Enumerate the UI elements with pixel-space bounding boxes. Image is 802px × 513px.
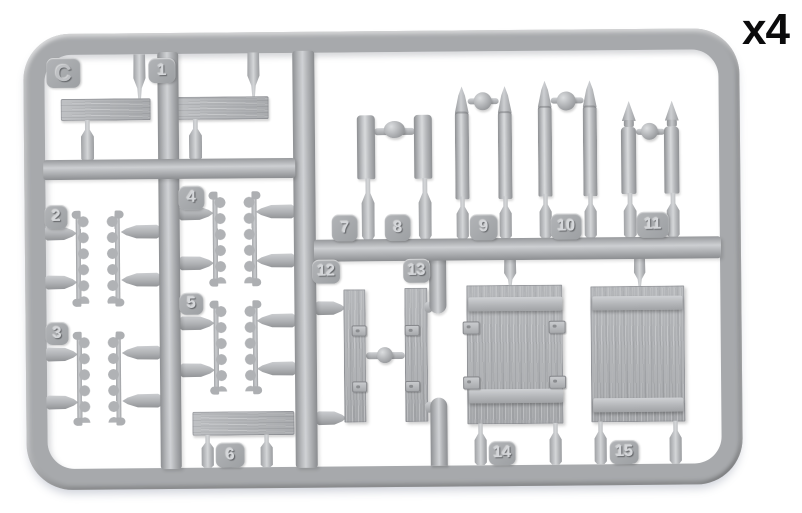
part-11-shell	[664, 127, 680, 194]
part-tab-5: 5	[179, 293, 203, 315]
part-10-shell	[583, 105, 598, 196]
part-tab-1: 1	[148, 58, 175, 83]
part-tab-6: 6	[216, 442, 245, 467]
hinge	[463, 321, 480, 334]
crate-batten	[468, 297, 562, 312]
part-10-shell	[538, 106, 553, 197]
sprue-rail-horizontal	[314, 236, 721, 262]
part-tab-11: 11	[637, 212, 669, 238]
part-6-plank	[192, 411, 294, 436]
part-2-serrated-strip	[106, 213, 121, 303]
part-tab-4: 4	[178, 186, 204, 210]
hinge	[463, 376, 480, 389]
latch	[405, 325, 420, 336]
sprue-rail-horizontal	[43, 158, 295, 180]
part-tab-15: 15	[610, 440, 639, 464]
part-2-serrated-strip	[76, 214, 91, 304]
part-5-serrated-strip	[243, 303, 258, 391]
sprue-connector-knob	[377, 347, 393, 363]
part-1-plank	[61, 98, 151, 121]
sprue-stub	[429, 259, 446, 314]
crate-batten	[592, 296, 682, 311]
hinge	[549, 321, 566, 334]
part-3-serrated-strip	[77, 335, 92, 423]
sprue-photo: x4	[0, 0, 802, 513]
part-4-serrated-strip	[212, 195, 227, 284]
sprue-connector-knob	[384, 121, 405, 138]
part-tab-2: 2	[45, 205, 68, 229]
sprue-connector-knob	[641, 123, 658, 140]
latch	[405, 381, 420, 392]
part-tab-9: 9	[470, 214, 498, 240]
part-9-shell	[455, 111, 470, 199]
part-1-plank	[177, 96, 269, 120]
part-tab-14: 14	[489, 441, 516, 465]
crate-batten	[469, 389, 563, 404]
part-8-shell-casing	[414, 115, 433, 179]
sprue-rail-vertical	[157, 52, 182, 469]
sprue-connector-knob	[557, 91, 576, 110]
latch	[352, 381, 367, 392]
latch	[352, 325, 367, 336]
part-tab-12: 12	[312, 260, 340, 284]
part-tab-7: 7	[332, 214, 358, 241]
sprue-connector-knob	[474, 92, 492, 110]
crate-batten	[593, 398, 683, 413]
sprue-letter-tab: C	[46, 58, 80, 88]
sprue-c: C 1 2 3 4 5 6 7 8 9 10 11 12 13 14 15	[0, 0, 802, 513]
part-4-serrated-strip	[242, 194, 257, 283]
part-3-serrated-strip	[107, 334, 122, 422]
hinge	[549, 376, 566, 389]
part-11-shell	[621, 127, 637, 194]
part-12-box-side	[343, 289, 366, 422]
part-tab-13: 13	[403, 259, 430, 283]
part-tab-8: 8	[385, 214, 411, 241]
sprue-stub	[430, 398, 448, 466]
part-tab-3: 3	[46, 322, 69, 345]
part-7-shell-casing	[357, 115, 376, 179]
part-tab-10: 10	[551, 213, 582, 239]
part-5-serrated-strip	[213, 304, 228, 392]
part-9-shell	[498, 111, 513, 199]
